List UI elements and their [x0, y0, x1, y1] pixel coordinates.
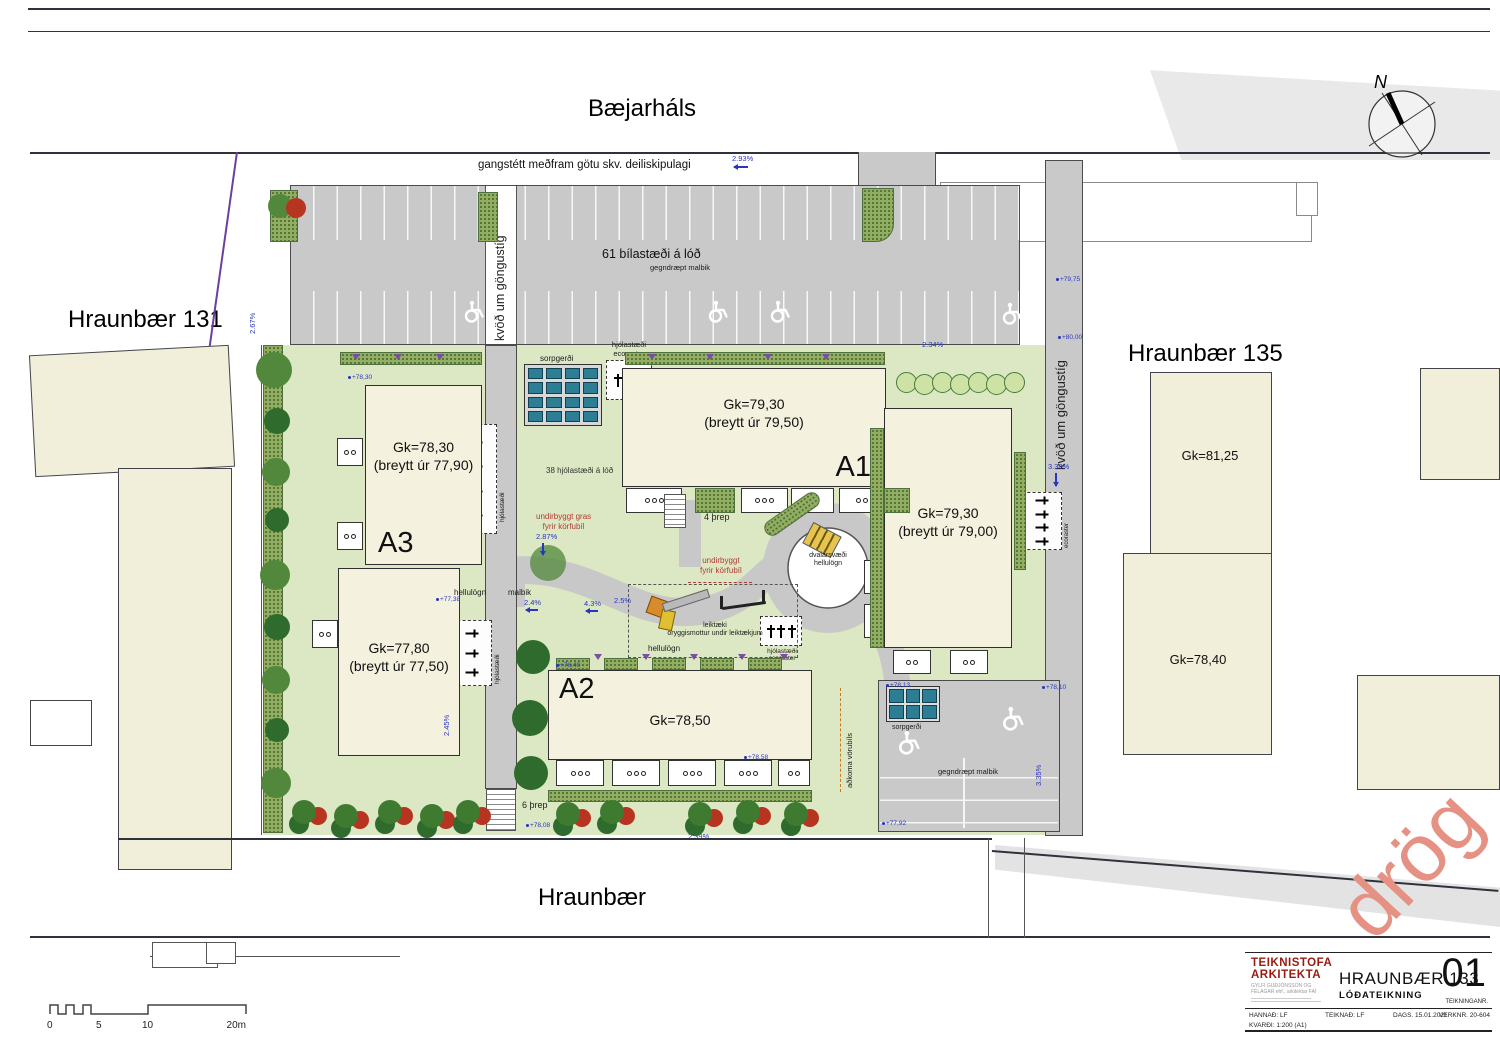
- north-label: N: [1374, 72, 1388, 92]
- building-a3: Gk=78,30 (breytt úr 77,90) A3: [365, 385, 482, 565]
- parking-stalls: [291, 291, 1019, 344]
- building-a1-label: A1: [836, 451, 871, 484]
- hedge: [700, 658, 734, 670]
- hedge: [695, 488, 735, 513]
- bike-symbol: [319, 632, 324, 637]
- building-b-note: (breytt úr 77,50): [339, 657, 459, 675]
- entrance-marker: [436, 354, 444, 360]
- bike-rack-label: hjólastæði: [494, 624, 501, 684]
- bike-symbol: [627, 771, 632, 776]
- hedge: [862, 188, 894, 242]
- entry-porch: [950, 650, 988, 674]
- bike-symbol: [795, 771, 800, 776]
- firm-name-line1: TEIKNISTOFA: [1251, 958, 1335, 970]
- tree: [516, 640, 550, 674]
- parking-stalls: [291, 186, 1019, 240]
- entrance-marker: [594, 654, 602, 660]
- title-block-divider: [1245, 1008, 1492, 1009]
- reinforced-grass-note: undirbyggt gras fyrir körfubíl: [536, 512, 591, 531]
- tree: [256, 352, 292, 388]
- drawn-by: TEIKNAÐ: LF: [1325, 1012, 1364, 1019]
- tree: [512, 700, 548, 736]
- tree: [264, 408, 290, 434]
- waste-bin: [528, 368, 543, 379]
- slope-label: 3.38%: [1048, 462, 1069, 471]
- shrub-cluster: [420, 804, 444, 828]
- firm-address-line: [1251, 998, 1311, 999]
- hedge: [340, 352, 482, 365]
- bike-symbol: [690, 771, 695, 776]
- waste-shelter: [524, 364, 602, 426]
- road-edge-line: [30, 152, 1490, 154]
- entry-porch: [778, 760, 810, 786]
- hedge: [1014, 452, 1026, 570]
- drawing-scale: KVARÐI: 1:200 (A1): [1249, 1022, 1307, 1029]
- shrub-cluster: [784, 802, 808, 826]
- building-east: Gk=79,30 (breytt úr 79,00): [884, 408, 1012, 648]
- bike-symbol: [769, 498, 774, 503]
- entry-porch: [556, 760, 604, 786]
- entrance-marker: [648, 354, 656, 360]
- spot-elevation: +77,38: [436, 596, 460, 603]
- stairs-label: 6 þrep: [522, 800, 548, 810]
- road-edge-line: [28, 8, 1490, 10]
- tree: [264, 614, 290, 640]
- crossing-line: [1024, 838, 1025, 938]
- neighbor-gk: Gk=81,25: [1160, 448, 1260, 465]
- dashed-marker: [688, 582, 752, 583]
- neighbor-gk: Gk=78,40: [1148, 652, 1248, 669]
- wheelchair-icon: [768, 300, 792, 324]
- building-a2-label: A2: [559, 673, 594, 706]
- stairs-label: 4 þrep: [704, 512, 730, 522]
- hedge: [748, 658, 782, 670]
- waste-bin: [565, 411, 580, 422]
- entry-porch: [724, 760, 772, 786]
- entrance-marker: [822, 354, 830, 360]
- bike-symbol: [641, 771, 646, 776]
- slope-arrow: [1055, 473, 1057, 486]
- bike-symbol: [913, 660, 918, 665]
- building-a1-note: (breytt úr 79,50): [623, 413, 885, 431]
- neighbor-building: [29, 345, 235, 477]
- slope-label: 2.45%: [442, 706, 451, 736]
- waste-bin: [906, 689, 921, 703]
- north-arrow: N: [1352, 66, 1452, 166]
- bike-rack-label: hjólastæði: [499, 436, 506, 522]
- street-name-top: Bæjarháls: [588, 95, 696, 123]
- waste-bin: [889, 705, 904, 719]
- bike-rack-label: ecoraster: [1064, 496, 1071, 548]
- scale-bar: 0 5 10 20m: [40, 978, 260, 1033]
- firm-name-line2: ARKITEKTA: [1251, 970, 1335, 982]
- bike-symbol: [351, 450, 356, 455]
- waste-bin: [546, 382, 561, 393]
- tree: [260, 560, 290, 590]
- bike-symbol: [755, 498, 760, 503]
- hedge: [604, 658, 638, 670]
- spot-elevation: +78,40: [556, 662, 580, 669]
- seesaw-icon: [720, 596, 723, 609]
- tree: [265, 718, 289, 742]
- waste-shelter-label: sorpgerði: [540, 354, 573, 363]
- lot-boundary-line: [209, 152, 238, 346]
- waste-bin: [546, 397, 561, 408]
- shrub-cluster: [556, 802, 580, 826]
- bike-symbol: [906, 660, 911, 665]
- entrance-marker: [352, 354, 360, 360]
- entrance-marker: [764, 354, 772, 360]
- tree: [262, 458, 290, 486]
- designed-by: HANNAÐ: LF: [1249, 1012, 1288, 1019]
- waste-bin: [528, 382, 543, 393]
- waste-bin: [546, 368, 561, 379]
- neighbor-building: [1420, 368, 1500, 480]
- slope-label: 2.67%: [248, 304, 257, 334]
- tree: [514, 756, 548, 790]
- entry-porch: [668, 760, 716, 786]
- entry-porch: [337, 438, 363, 466]
- shrub-cluster: [334, 804, 358, 828]
- bike-symbol: [739, 771, 744, 776]
- spot-elevation: +78,08: [526, 822, 550, 829]
- wheelchair-icon: [896, 730, 922, 756]
- spot-elevation: +78,13: [886, 682, 910, 689]
- bike-symbol: [863, 498, 868, 503]
- neighbor-building: [1357, 675, 1500, 790]
- bike-stand-icon: [466, 671, 479, 673]
- shrub-cluster: [736, 800, 760, 824]
- bike-count-label: 38 hjólastæði á lóð: [546, 466, 613, 475]
- slope-arrow: [734, 166, 748, 168]
- bike-stand-icon: [466, 633, 479, 635]
- tree: [1004, 372, 1025, 393]
- shrub-cluster: [688, 802, 712, 826]
- shrub-cluster: [600, 800, 624, 824]
- shrub-cluster: [378, 800, 402, 824]
- waste-bin: [565, 382, 580, 393]
- bike-stand-icon: [1036, 513, 1049, 515]
- bike-symbol: [326, 632, 331, 637]
- hedge: [478, 192, 498, 242]
- waste-bin: [583, 382, 598, 393]
- asphalt-label: malbik: [508, 588, 531, 597]
- title-block: TEIKNISTOFA ARKITEKTA GYLFI GUÐJÓNSSON O…: [1245, 952, 1492, 1032]
- permeable-asphalt-label: gegndræpt malbik: [650, 264, 710, 273]
- seesaw-icon: [762, 590, 765, 603]
- slope-label: 2.87%: [536, 532, 557, 541]
- reinforced-grass-note: undirbyggt fyrir körfubíl: [700, 556, 742, 575]
- firm-address-line: [1251, 1001, 1321, 1002]
- slope-label: 2.39%: [688, 832, 709, 841]
- slope-label: 2.5%: [614, 596, 631, 605]
- scale-tick-10: 10: [142, 1020, 154, 1031]
- crossing-line: [988, 838, 989, 938]
- spot-elevation: +80,00: [1058, 334, 1082, 341]
- waste-bin: [565, 368, 580, 379]
- road-edge-line: [30, 936, 1490, 938]
- hedge: [870, 428, 884, 648]
- bike-symbol: [753, 771, 758, 776]
- entry-porch: [337, 522, 363, 550]
- site-plan-sheet: Bæjarháls N gangstétt meðfram götu skv. …: [0, 0, 1500, 1060]
- entry-porch: [612, 760, 660, 786]
- waste-bin: [528, 397, 543, 408]
- slope-arrow: [542, 543, 544, 555]
- bike-symbol: [634, 771, 639, 776]
- firm-logo: TEIKNISTOFA ARKITEKTA GYLFI GUÐJÓNSSON O…: [1251, 958, 1335, 1002]
- driveway: [858, 152, 936, 187]
- bike-stand-icon: [617, 374, 619, 387]
- bike-symbol: [856, 498, 861, 503]
- waste-bin: [583, 411, 598, 422]
- entry-porch: [741, 488, 788, 513]
- waste-bin: [528, 411, 543, 422]
- wheelchair-icon: [1000, 706, 1026, 732]
- road-edge-line: [118, 838, 992, 840]
- bike-symbol: [351, 534, 356, 539]
- hedge: [884, 488, 910, 513]
- parking-count-label: 61 bílastæði á lóð: [602, 247, 701, 261]
- slope-arrow: [586, 610, 598, 612]
- permeable-asphalt-label: gegndræpt malbik: [938, 768, 998, 777]
- spot-elevation: +79,75: [1056, 276, 1080, 283]
- entry-porch: [893, 650, 931, 674]
- bike-symbol: [697, 771, 702, 776]
- waste-bin: [583, 397, 598, 408]
- building-a2-gk: Gk=78,50: [549, 711, 811, 729]
- building-a1: Gk=79,30 (breytt úr 79,50) A1: [622, 368, 886, 487]
- waste-bin: [565, 397, 580, 408]
- red-shrub: [286, 198, 306, 218]
- hedge: [548, 790, 812, 802]
- building-a2: A2 Gk=78,50: [548, 670, 812, 760]
- truck-route-line: [840, 688, 841, 792]
- shrub-cluster: [456, 800, 480, 824]
- bike-symbol: [963, 660, 968, 665]
- drawing-type: LÓÐATEIKNING: [1339, 990, 1423, 1001]
- waste-bin: [906, 705, 921, 719]
- neighbor-building-notch: [30, 700, 92, 746]
- bike-stand-icon: [1036, 499, 1049, 501]
- spot-elevation: +78,30: [348, 374, 372, 381]
- wheelchair-icon: [462, 300, 486, 324]
- waste-bin: [546, 411, 561, 422]
- bike-symbol: [788, 771, 793, 776]
- play-area-boundary: [628, 584, 798, 658]
- tree: [530, 545, 566, 581]
- sheet-number-label: TEIKNINGANR.: [1445, 999, 1488, 1005]
- walk-easement-label: kvöð um göngustíg: [1053, 350, 1068, 470]
- road-edge-line: [28, 31, 1490, 32]
- bike-symbol: [344, 534, 349, 539]
- rest-area-label: dvalarsvæði hellulögn: [796, 552, 860, 568]
- bike-symbol: [645, 498, 650, 503]
- sidewalk-note: gangstétt meðfram götu skv. deiliskipula…: [478, 159, 691, 171]
- scale-tick-0: 0: [47, 1020, 53, 1031]
- neighbor-label-right: Hraunbær 135: [1128, 340, 1283, 368]
- tree: [265, 508, 289, 532]
- slope-label: 3.35%: [1034, 756, 1043, 786]
- building-a3-note: (breytt úr 77,90): [366, 456, 481, 474]
- building-a3-gk: Gk=78,30: [366, 438, 481, 456]
- entrance-marker: [706, 354, 714, 360]
- curb-piece: [206, 942, 236, 964]
- building-a3-label: A3: [378, 527, 413, 560]
- waste-shelter: [886, 686, 940, 722]
- neighbor-label-left: Hraunbær 131: [68, 306, 223, 334]
- stairs: [664, 494, 686, 528]
- waste-bin: [922, 689, 937, 703]
- waste-bin: [922, 705, 937, 719]
- sheet-number: 01: [1442, 951, 1487, 996]
- bike-symbol: [659, 498, 664, 503]
- bike-stand-icon: [1036, 541, 1049, 543]
- hedge: [652, 658, 686, 670]
- tree: [262, 666, 290, 694]
- scale-tick-5: 5: [96, 1020, 102, 1031]
- bike-symbol: [683, 771, 688, 776]
- spot-elevation: +78,58: [744, 754, 768, 761]
- bike-symbol: [585, 771, 590, 776]
- firm-subtitle: GYLFI GUÐJÓNSSON OG FÉLAGAR ehf., arkite…: [1251, 983, 1331, 995]
- tree: [261, 768, 291, 798]
- slope-label: 2.93%: [732, 154, 753, 163]
- bike-symbol: [344, 450, 349, 455]
- street-name-bottom: Hraunbær: [538, 884, 646, 912]
- hedge: [625, 352, 885, 365]
- bike-stand-icon: [466, 652, 479, 654]
- entry-porch: [312, 620, 338, 648]
- slope-arrow: [526, 609, 538, 611]
- lot-boundary-line: [261, 345, 262, 835]
- neighbor-building: [118, 468, 232, 870]
- bike-symbol: [746, 771, 751, 776]
- scale-tick-20: 20m: [227, 1020, 246, 1031]
- waste-bin: [889, 689, 904, 703]
- shrub-cluster: [292, 800, 316, 824]
- building-b-gk: Gk=77,80: [339, 639, 459, 657]
- bike-symbol: [762, 498, 767, 503]
- bike-rack: [1022, 492, 1062, 550]
- wheelchair-icon: [706, 300, 730, 324]
- building-a1-gk: Gk=79,30: [623, 395, 885, 413]
- bike-symbol: [571, 771, 576, 776]
- slope-label: 2.34%: [922, 340, 943, 349]
- service-road-notch: [1296, 182, 1318, 216]
- entrance-marker: [394, 354, 402, 360]
- wheelchair-icon: [1000, 302, 1024, 326]
- building-east-note: (breytt úr 79,00): [885, 522, 1011, 540]
- bike-symbol: [652, 498, 657, 503]
- spot-elevation: +77,92: [882, 820, 906, 827]
- bike-symbol: [578, 771, 583, 776]
- waste-bin: [583, 368, 598, 379]
- truck-access-label: aðkoma vörubíls: [846, 692, 855, 788]
- bike-symbol: [970, 660, 975, 665]
- spot-elevation: +78,10: [1042, 684, 1066, 691]
- job-number: VERKNR. 20-604: [1439, 1012, 1490, 1019]
- stairs: [486, 789, 516, 831]
- bike-stand-icon: [1036, 527, 1049, 529]
